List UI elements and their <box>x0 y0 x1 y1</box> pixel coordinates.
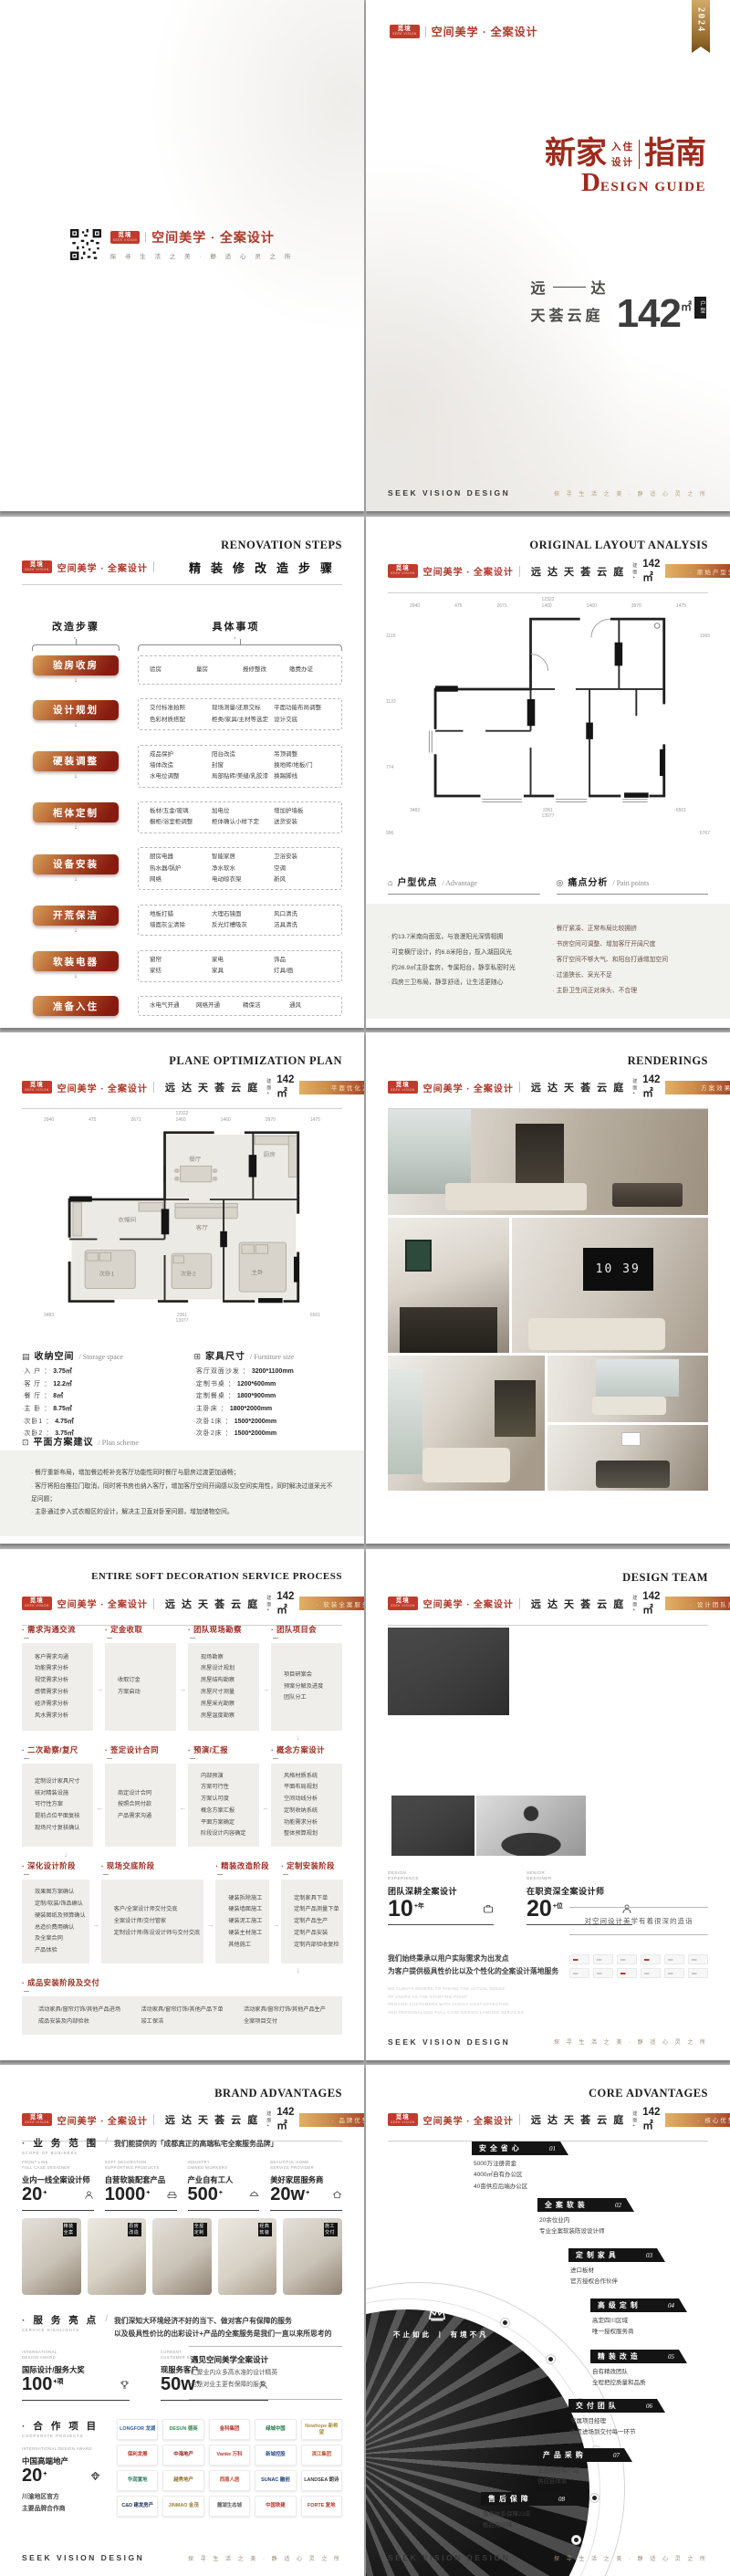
furniture-row: 客厅双面沙发： 3200*1100mm <box>194 1366 343 1378</box>
developer-logo: 麓湖生态城 <box>209 2496 250 2517</box>
step-item: 智能家居 <box>212 852 268 863</box>
core-advantage-items: 进口板材官方授权合作伙伴 <box>568 2266 713 2288</box>
team-photo-mosaic <box>388 1628 708 1856</box>
area-icon: 建面+ <box>266 1595 271 1613</box>
divider <box>425 26 426 37</box>
furniture-value: 3200*1100mm <box>252 1366 294 1378</box>
briefcase-icon <box>483 1903 494 1914</box>
core-advantage-banner: 全 案 软 装 02 <box>537 2198 634 2212</box>
page-title-en: RENDERINGS <box>628 1054 708 1068</box>
renovation-steps-list: 验房收房 ↓ 验房量房报修整改缴费办证 设计规划 ↓ 交付标准拍照现场测量/还原… <box>22 655 342 1017</box>
business-card-tag: 精装全案 <box>63 2223 77 2236</box>
meet-title: 遇见空间美学全案设计 <box>191 2354 340 2365</box>
process-step: 签定设计合同 商定设计合同按照合同付款产品需求沟通 <box>105 1744 176 1848</box>
process-item: 其他施工 <box>228 1940 266 1951</box>
process-step: 团队现场勘察 现场勘察房屋设计规划房屋结构勘察房屋尺寸测量房屋采光勘察房屋温度勘… <box>188 1624 259 1731</box>
step-item: 反光灯槽吸灰 <box>212 920 268 931</box>
area-value: 142㎡ <box>642 2107 660 2132</box>
stat-number: 1000 <box>105 2186 146 2204</box>
scheme-panel: 餐厅重新布局，增加餐边柜补充客厅功能性同时餐厅与厨房过渡更加通畅；客厅将阳台推拉… <box>0 1450 364 1536</box>
brand-logo-chip: 觅境 SEEK VISION <box>110 231 141 244</box>
bracket-left <box>32 644 120 651</box>
core-advantage: 全 案 软 装 02 20余位业内专业全案软装陈设设计师 <box>537 2198 682 2238</box>
stat-awards: INTERNATIONALDESIGN AWARD 国际设计/服务大奖 100 … <box>22 2350 130 2401</box>
page-badge: · 原始户型分析 · <box>665 564 730 578</box>
page-badge: · 核心优势 · <box>665 2113 730 2127</box>
core-advantage-number: 02 <box>615 2202 627 2209</box>
process-item: 风水需求分析 <box>35 1711 89 1722</box>
furniture-key: 定制书桌 <box>196 1378 225 1391</box>
dim-value: 1115 <box>386 634 396 639</box>
core-advantage-number: 05 <box>668 2353 680 2361</box>
developer-logo: JINMAO 金茂 <box>162 2496 203 2517</box>
column-header-items: 具体事项 <box>130 619 342 640</box>
stat-en-line1: SENIOR <box>527 1870 545 1875</box>
process-step-title: 团队现场勘察 <box>188 1624 259 1635</box>
developer-logo: 绿城中国 <box>255 2419 296 2440</box>
footer-slogan: 探 寻 生 活 之 美 · 静 适 心 灵 之 所 <box>554 489 708 497</box>
process-item: 客户/全案设计师交付交底 <box>114 1904 201 1915</box>
core-advantage-item: 自有精改团队 <box>592 2367 730 2378</box>
process-item: 经济需求分析 <box>35 1699 89 1710</box>
stat-number: 100 <box>22 2376 52 2393</box>
cover-title-stack: 入住 设计 <box>611 140 640 169</box>
diamond-icon <box>90 2471 100 2481</box>
home-icon <box>332 2190 342 2200</box>
team-portrait <box>388 1628 509 1715</box>
furniture-row: 次卧2床： 1500*2000mm <box>194 1428 343 1440</box>
process-item: 项目研案会 <box>284 1670 339 1681</box>
core-advantage-item: 全程把控质量和品质 <box>592 2378 730 2389</box>
optimized-floor-plan: 12322 294047526711460146039701475 <box>36 1111 328 1341</box>
step-item: 增加护墙板 <box>274 806 330 817</box>
brand-name: 空间美学 · 全案设计 <box>57 2113 148 2127</box>
scheme-item: 客厅将阳台推拉门取消，同时将书房也纳入客厅，增加客厅空间开阔感以及空间实用性，同… <box>31 1481 333 1507</box>
divider <box>153 1598 154 1609</box>
process-step: 团队项目会 项目研案会预案分解及进度团队分工 <box>271 1624 342 1731</box>
coop-en2: INTERNATIONAL DESIGN AWARD <box>22 2446 100 2452</box>
core-advantage-item: 负责进场到交付每一环节 <box>570 2427 713 2438</box>
process-step: 二次勘察/复尺 定制设计家具尺寸核对精装设施可行性方案提前点位平面复核现场尺寸复… <box>22 1744 93 1848</box>
storage-row: 次卧1： 4.75㎡ <box>22 1416 171 1429</box>
stat-en2: OWNED WORKERS <box>188 2165 228 2170</box>
process-item: 收取订金 <box>118 1675 172 1686</box>
process-step-box: 硬装拆除施工硬装墙面施工硬装泥工施工硬装主材施工其他施工 <box>215 1880 269 1963</box>
step-items-box: 窗帘家电饰品家纺家具灯具/画 <box>138 950 342 982</box>
stat-design-experience: DESIGNEXPERIENCE 团队深耕全案设计 10 +年 <box>388 1870 494 1925</box>
stat-en1: INDUSTRY <box>188 2160 211 2164</box>
stat-label: 国际设计/服务大奖 <box>22 2364 130 2375</box>
dim-value: 2671 <box>496 603 506 609</box>
partner-logo <box>641 1968 661 1978</box>
dash <box>24 1991 29 1992</box>
page-original-layout: ORIGINAL LAYOUT ANALYSIS 觅境 SEEK VISION … <box>366 517 730 1028</box>
page-service-process: ENTIRE SOFT DECORATION SERVICE PROCESS 觅… <box>0 1549 364 2060</box>
dim-value: 1122 <box>386 699 396 705</box>
developer-logo: DESUN 德商 <box>162 2419 203 2440</box>
storage-value: 4.75㎡ <box>55 1416 74 1429</box>
advantage-list: 约13.7米南向面宽，与浪漫阳光深情相拥可变横厅设计，约6.8米阳台，揽入湖园风… <box>388 918 544 1004</box>
developer-logo: LONGFOR 龙湖 <box>117 2419 158 2440</box>
dim-value: 774 <box>386 765 396 770</box>
stat-designers: FRONT LINEFULL CASE DESIGNER 业内一线全案设计师 2… <box>22 2160 94 2211</box>
process-step-box: 项目研案会预案分解及进度团队分工 <box>271 1643 342 1731</box>
area-icon: 建面+ <box>632 1595 637 1613</box>
core-advantage-banner: 产 品 采 购 07 <box>536 2448 632 2462</box>
core-advantage-label: 产 品 采 购 <box>543 2450 584 2460</box>
cover-project-block: 远 达 天荟云庭 142 ㎡ 户型 <box>531 276 706 330</box>
core-advantage-items: 自有精改团队全程把控质量和品质 <box>590 2367 730 2390</box>
divider <box>153 561 154 572</box>
core-advantage: 定 制 家 具 03 进口板材官方授权合作伙伴 <box>568 2248 713 2288</box>
process-item: 方案认可度 <box>201 1794 255 1805</box>
renovation-step-row: 开荒保洁 ↓ 地板打蜡大理石镜面风口清洗墙面灰尘清除反光灯槽吸灰洁具清洗 <box>22 905 342 937</box>
service-desc: 我们深知大环境经济不好的当下、做对客户有保障的服务 以及极具性价比的出彩设计+产… <box>114 2315 331 2340</box>
step-item: 量房 <box>196 665 237 675</box>
divider <box>145 232 146 243</box>
brochure-sheet: 觅境 SEEK VISION 空间美学 · 全案设计 探 寻 生 活 之 美 ·… <box>0 0 730 2576</box>
rendering-living-dining-photo <box>388 1109 708 1215</box>
process-row-2: 二次勘察/复尺 定制设计家具尺寸核对精装设施可行性方案提前点位平面复核现场尺寸复… <box>22 1744 342 1848</box>
step-item: 通风 <box>289 1000 330 1011</box>
stat-en1: BEAUTIFUL HOME <box>270 2160 308 2164</box>
footer-slogan: 探 寻 生 活 之 美 · 静 适 心 灵 之 所 <box>554 2037 708 2046</box>
divider <box>153 2114 154 2125</box>
step-item: 卫浴安装 <box>274 852 330 863</box>
team-paragraph-line1: 我们始终秉承以用户实际需求为出发点 <box>388 1953 561 1966</box>
process-step-title: 概念方案设计 <box>271 1744 342 1755</box>
brand-logo-chip: 觅境 SEEK VISION <box>390 25 420 37</box>
step-pill: 硬装调整 <box>33 751 119 771</box>
step-item: 厨房电器 <box>150 852 206 863</box>
core-advantage: 产 品 采 购 07 上万件自有产品供应链体系 <box>536 2448 680 2488</box>
coop-stat-block: INTERNATIONAL DESIGN AWARD 中国高端地产 20 + 川… <box>22 2446 100 2516</box>
developer-logo: 华润置地 <box>117 2470 158 2491</box>
partner-logo <box>569 1968 589 1978</box>
service-desc-line1: 我们深知大环境经济不好的当下、做对客户有保障的服务 <box>114 2315 331 2328</box>
step-item: 色彩材质搭配 <box>150 715 206 726</box>
page-badge: · 软装全案服务流程 · <box>299 1597 364 1610</box>
process-item: 平面布局规划 <box>284 1782 339 1793</box>
furniture-row: 定制书桌： 1200*600mm <box>194 1378 343 1391</box>
meet-line1: 汇聚业内众多高水准的设计精英 <box>191 2368 340 2380</box>
partner-logo <box>617 1968 637 1978</box>
page-badge: · 方案效果图 · <box>665 1081 730 1094</box>
pain-list: 餐厅紧凑、正常布局比较拥挤书房空间可调整、增加客厅开阔尺度客厅空间不够大气、和阳… <box>553 918 709 1004</box>
page-title-en: DESIGN TEAM <box>622 1571 708 1585</box>
partner-logo <box>569 1954 589 1964</box>
renovation-step-row: 柜体定制 ↓ 板材/五金/玻璃加电位增加护墙板橱柜/浴室柜调整柜体确认小样下定送… <box>22 801 342 833</box>
page-header: 觅境 SEEK VISION 空间美学 · 全案设计 远 达 天 荟 云 庭 建… <box>388 1591 708 1626</box>
scope-stats: FRONT LINEFULL CASE DESIGNER 业内一线全案设计师 2… <box>22 2160 342 2211</box>
business-card-photo: 经典软装 <box>218 2218 277 2295</box>
core-advantage-item: 官方授权合作伙伴 <box>570 2277 713 2288</box>
developer-logo: Vanke 万科 <box>209 2445 250 2466</box>
room-label: 次卧2 <box>181 1270 196 1278</box>
process-item: 全案设计师/交付管家 <box>114 1916 201 1927</box>
scope-section-header: 业 务 范 围 SCOPE OF BUSINESS / 我们能提供的「成都真正的… <box>22 2136 277 2155</box>
divider <box>153 1082 154 1093</box>
core-advantage-label: 安 全 省 心 <box>479 2143 520 2153</box>
process-step-box: 客户/全案设计师交付交底全案设计师/交付管家定制设计师/陈设设计师与交付交底 <box>101 1880 204 1963</box>
stat-en2: SUPPORTING PRODUCTS <box>105 2165 160 2170</box>
page-title-en: BRAND ADVANTAGES <box>214 2087 342 2100</box>
step-item: 家具 <box>212 966 268 977</box>
core-advantage-banner: 安 全 省 心 01 <box>472 2141 568 2155</box>
process-step-title: 深化设计阶段 <box>22 1860 89 1871</box>
stat-suffix: + <box>43 2190 47 2196</box>
core-advantage-items: 服务体系保障23年售后有保障 <box>481 2509 625 2532</box>
step-items-box: 地板打蜡大理石镜面风口清洗墙面灰尘清除反光灯槽吸灰洁具清洗 <box>138 905 342 937</box>
process-item: 空间动线分析 <box>284 1794 339 1805</box>
brand-logo-chip: 觅境 SEEK VISION <box>388 1081 418 1094</box>
developer-logo: FORTE 复地 <box>301 2496 342 2517</box>
step-item: 新风 <box>274 874 330 885</box>
process-item: 方案可行性 <box>201 1782 255 1793</box>
dim-total-bottom: 13977 <box>402 813 693 819</box>
core-advantage-label: 高 级 定 制 <box>598 2300 639 2310</box>
dim-value: 1475 <box>676 603 686 609</box>
team-paragraph-en: WE ALWAYS ADHERE TO TAKING THE ACTUAL NE… <box>388 1985 561 2016</box>
team-paragraph-line2: 为客户提供极具性价比以及个性化的全案设计落地服务 <box>388 1965 561 1979</box>
scope-desc: 我们能提供的「成都真正的高端私宅全案服务品牌」 <box>114 2138 277 2151</box>
developer-logo: 保利发展 <box>117 2445 158 2466</box>
process-item: 竣工保洁 <box>141 2016 223 2027</box>
furniture-value: 1800*2000mm <box>230 1403 272 1416</box>
dash <box>24 1874 29 1875</box>
crown-icon <box>428 2308 446 2322</box>
brand-name: 空间美学 · 全案设计 <box>432 24 538 39</box>
step-item: 墙面灰尘清除 <box>150 920 206 931</box>
arrow-down-icon: ↓ <box>74 927 78 935</box>
footer-brand-en: SEEK VISION DESIGN <box>22 2553 144 2562</box>
page-design-team: DESIGN TEAM 觅境 SEEK VISION 空间美学 · 全案设计 远… <box>366 1549 730 2060</box>
page-brand-advantages: BRAND ADVANTAGES 觅境 SEEK VISION 空间美学 · 全… <box>0 2065 364 2576</box>
cover-area: 142 ㎡ 户型 <box>617 297 706 330</box>
process-item: 及全案合同 <box>35 1933 86 1944</box>
business-photo-cards: 精装全案 原房改造 全屋定制 经典软装 施工交付 <box>22 2218 342 2295</box>
arc-dot <box>548 2357 553 2361</box>
project-name: 远 达 天 荟 云 庭 <box>531 564 625 579</box>
dim-value: 1475 <box>310 1117 320 1123</box>
process-item: 预案分解及进度 <box>284 1681 339 1692</box>
team-quote: 对空间设计美学有着很深的造诣 <box>569 1907 708 1935</box>
page-core-advantages: CORE ADVANTAGES 觅境 SEEK VISION 空间美学 · 全案… <box>366 2065 730 2576</box>
final-stage-box: 活动家具/窗帘灯饰/其他产品进场成品安装及内部验收 活动家具/窗帘灯饰/其他产品… <box>22 1996 342 2036</box>
brand-logo-sub: SEEK VISION <box>25 1605 49 1608</box>
process-step-title: 预演/汇报 <box>188 1744 259 1755</box>
step-item: 送货安装 <box>274 817 330 828</box>
page-badge: · 平面优化方案 · <box>299 1081 364 1094</box>
cover-header: 觅境 SEEK VISION 空间美学 · 全案设计 <box>390 24 538 39</box>
process-item: 感情需求分析 <box>35 1687 89 1698</box>
area-tag: 户型 <box>694 297 706 319</box>
core-advantage-item: 供应链体系 <box>537 2477 680 2487</box>
partner-logo <box>593 1954 613 1964</box>
brand-name: 空间美学 · 全案设计 <box>423 564 514 578</box>
page-renovation-steps: RENOVATION STEPS 觅境 SEEK VISION 空间美学 · 全… <box>0 517 364 1028</box>
arrow-down-icon: ↓ <box>74 973 78 980</box>
page-footer: SEEK VISION DESIGN 探 寻 生 活 之 美 · 静 适 心 灵… <box>22 2553 342 2562</box>
brand-logo-sub: SEEK VISION <box>391 1605 415 1608</box>
step-item: 板材/五金/玻璃 <box>150 806 206 817</box>
process-item: 平面方案确定 <box>201 1817 255 1828</box>
step-item: 换踢脚线 <box>274 771 330 782</box>
business-card-photo: 全屋定制 <box>152 2218 212 2295</box>
step-items-box: 交付标准拍照现场测量/还原交标平面功能布局调整色彩材质搭配柜类/家具/主材等选定… <box>138 698 342 730</box>
developer-logo: 滨江集团 <box>301 2445 342 2466</box>
pain-item: 客厅空间不够大气、和阳台打通增加空间 <box>553 953 709 969</box>
step-item: 平面功能布局调整 <box>274 703 330 714</box>
core-advantage: 高 级 定 制 04 高定四川区域唯一授权服务商 <box>590 2299 730 2339</box>
arrow-down-icon: ↓ <box>22 1847 342 1860</box>
brand-logo-sub: SEEK VISION <box>391 2121 415 2125</box>
core-advantage: 精 装 改 造 05 自有精改团队全程把控质量和品质 <box>590 2350 730 2390</box>
storage-row: 主 卧： 8.75㎡ <box>22 1403 171 1416</box>
rendering-kitchen-photo <box>388 1218 509 1353</box>
arc-dot <box>503 2320 507 2325</box>
stat-en1: SOFT DECORATION <box>105 2160 147 2164</box>
storage-value: 8.75㎡ <box>53 1403 72 1416</box>
advantage-title: 户型优点 <box>397 874 437 888</box>
process-item: 定制家具下单 <box>294 1893 339 1904</box>
brand-logo-sub: SEEK VISION <box>392 33 417 37</box>
sofa-icon <box>167 2190 177 2200</box>
process-item: 概念方案汇报 <box>201 1806 255 1817</box>
stat-en1: CURRENT <box>161 2350 182 2354</box>
process-step: 定制安装阶段 定制家具下单定制产品测量下单定制产品生产定制产品安装定制内部验收复… <box>281 1860 343 1963</box>
renovation-step-row: 准备入住 ↓ 水电气开通网络开通精保洁通风 <box>22 996 342 1016</box>
brand-logo-sub: SEEK VISION <box>391 1089 415 1093</box>
furniture-list: 客厅双面沙发： 3200*1100mm 定制书桌： 1200*600mm 定制餐… <box>194 1366 343 1440</box>
team-paragraph: 我们始终秉承以用户实际需求为出发点 为客户提供极具性价比以及个性化的全案设计落地… <box>388 1953 561 2017</box>
rendering-window-view-photo <box>547 1356 708 1422</box>
room-label: 次卧1 <box>99 1270 114 1278</box>
stat-label: 产业自有工人 <box>188 2174 260 2185</box>
core-advantage-label: 全 案 软 装 <box>545 2200 586 2210</box>
process-row-3: 深化设计阶段 效果图方案确认定制/软装/饰品确认硬装图纸及预算确认总造价费用确认… <box>22 1860 342 1963</box>
dash <box>24 1638 29 1639</box>
footer-brand-en: SEEK VISION DESIGN <box>388 488 510 497</box>
team-portrait <box>476 1796 585 1856</box>
dash <box>107 1638 112 1639</box>
stat-suffix: + <box>219 2190 223 2196</box>
advantage-item: 约26.9㎡主卧套房，专属阳台，静享私密时光 <box>388 961 544 977</box>
cover-title-stack1: 入住 <box>611 140 634 153</box>
page-footer: SEEK VISION DESIGN 探 寻 生 活 之 美 · 静 适 心 灵… <box>388 2553 708 2562</box>
business-card-tag: 全屋定制 <box>193 2223 207 2236</box>
process-step-title: 精装改造阶段 <box>215 1860 269 1871</box>
dim-value: 2361 <box>543 808 553 813</box>
core-advantage-item: 专属项目经理 <box>570 2416 713 2427</box>
room-label: 厨房 <box>264 1150 276 1158</box>
business-card-photo: 施工交付 <box>283 2218 342 2295</box>
stat-en1: FRONT LINE <box>22 2160 48 2164</box>
stat-suffix: +位 <box>553 1901 563 1911</box>
storage-icon: ▤ <box>22 1352 30 1362</box>
developer-logo: 越秀地产 <box>162 2470 203 2491</box>
brand-logo-chip: 觅境 SEEK VISION <box>22 1597 52 1609</box>
core-advantage-number: 03 <box>646 2252 658 2259</box>
process-step-title: 团队项目会 <box>271 1624 342 1635</box>
dash <box>190 1638 195 1639</box>
process-item: 整体预算规划 <box>284 1828 339 1839</box>
page-badge: · 品牌优势 · <box>299 2113 364 2127</box>
person-icon <box>84 2190 94 2200</box>
room-label: 餐厅 <box>189 1155 202 1163</box>
developer-logo: LANDSEA 朗诗 <box>301 2470 342 2491</box>
area-icon: 建面+ <box>632 562 637 581</box>
dash-line <box>553 287 586 288</box>
process-item: 商定设计合同 <box>118 1788 172 1799</box>
core-advantage-item: 20余位业内 <box>539 2215 682 2226</box>
team-paragraph-en-line: OF USERS AS THE STARTING POINT <box>388 1994 561 2002</box>
page-title-en: RENOVATION STEPS <box>221 539 342 552</box>
scheme-item: 餐厅重新布局，增加餐边柜补充客厅功能性同时餐厅与厨房过渡更加通畅； <box>31 1467 333 1480</box>
page-footer: SEEK VISION DESIGN 探 寻 生 活 之 美 · 静 适 心 灵… <box>388 2037 708 2047</box>
storage-key: 客 厅 <box>24 1378 41 1391</box>
area-value: 142㎡ <box>276 1591 294 1617</box>
storage-list: 入 户： 3.75㎡ 客 厅： 12.2㎡ 餐 厅： 8㎡ 主 卧： 8.75㎡ <box>22 1366 171 1440</box>
dash <box>24 1758 29 1759</box>
dim-value: 1460 <box>176 1117 186 1123</box>
step-item: 网络 <box>150 874 206 885</box>
step-items-box: 板材/五金/玻璃加电位增加护墙板橱柜/浴室柜调整柜体确认小样下定送货安装 <box>138 801 342 833</box>
trophy-icon <box>120 2380 130 2390</box>
step-item: 柜类/家具/主材等选定 <box>212 715 268 726</box>
arrow-down-icon: ↓ <box>22 1731 342 1744</box>
project-name: 远 达 天 荟 云 庭 <box>165 2112 259 2127</box>
dim-value: 996 <box>386 831 396 836</box>
storage-row: 入 户： 3.75㎡ <box>22 1366 171 1378</box>
partner-logos <box>569 1954 708 1978</box>
brand-logo-chip: 觅境 SEEK VISION <box>22 2113 52 2126</box>
process-step-box: 定制设计家具尺寸核对精装设施可行性方案提前点位平面复核现场尺寸复核确认 <box>22 1764 93 1848</box>
step-item: 家纺 <box>150 966 206 977</box>
page-back-cover: 觅境 SEEK VISION 空间美学 · 全案设计 探 寻 生 活 之 美 ·… <box>0 0 364 511</box>
final-stage-column: 活动家具/窗帘灯饰/其他产品下单竣工保洁 <box>141 2005 223 2027</box>
partner-logo <box>688 1968 708 1978</box>
slash: / <box>105 2137 108 2147</box>
plan-data-lists: ▤ 收纳空间 / Storage space 入 户： 3.75㎡ 客 厅： 1… <box>22 1348 342 1440</box>
process-item: 定制内部验收复检 <box>294 1940 339 1951</box>
page-title-en: ORIGINAL LAYOUT ANALYSIS <box>529 539 708 552</box>
area-icon: 建面+ <box>632 1078 637 1096</box>
process-item: 定制产品测量下单 <box>294 1904 339 1915</box>
business-card-tag: 经典软装 <box>258 2223 272 2236</box>
core-advantage-banner: 精 装 改 造 05 <box>590 2350 687 2363</box>
storage-key: 次卧1 <box>24 1416 43 1429</box>
process-item: 客户需求沟通 <box>35 1652 89 1663</box>
stat-number: 20 <box>22 2186 42 2204</box>
business-card-photo: 精装全案 <box>22 2218 81 2295</box>
cover-title: 新家 入住 设计 指南 D ESIGN GUIDE <box>545 139 706 195</box>
page-footer: SEEK VISION DESIGN 探 寻 生 活 之 美 · 静 适 心 灵… <box>388 488 708 497</box>
step-item: 饰品 <box>274 955 330 966</box>
process-step-box: 定制家具下单定制产品测量下单定制产品生产定制产品安装定制内部验收复检 <box>281 1880 343 1963</box>
core-advantage-number: 04 <box>668 2302 680 2309</box>
brand-logo-sub: SEEK VISION <box>25 2121 49 2125</box>
developer-logo: SUNAC 融创 <box>255 2470 296 2491</box>
core-advantage-number: 08 <box>558 2496 570 2503</box>
scheme-title-en: / Plan scheme <box>99 1439 139 1447</box>
dim-value: 6501 <box>310 1313 320 1318</box>
page-title-en: ENTIRE SOFT DECORATION SERVICE PROCESS <box>91 1571 342 1582</box>
process-item: 内部预演 <box>201 1771 255 1782</box>
floor-plan-svg <box>402 611 693 806</box>
process-item: 按照合同付款 <box>118 1799 172 1810</box>
pain-title: 痛点分析 <box>568 874 608 888</box>
